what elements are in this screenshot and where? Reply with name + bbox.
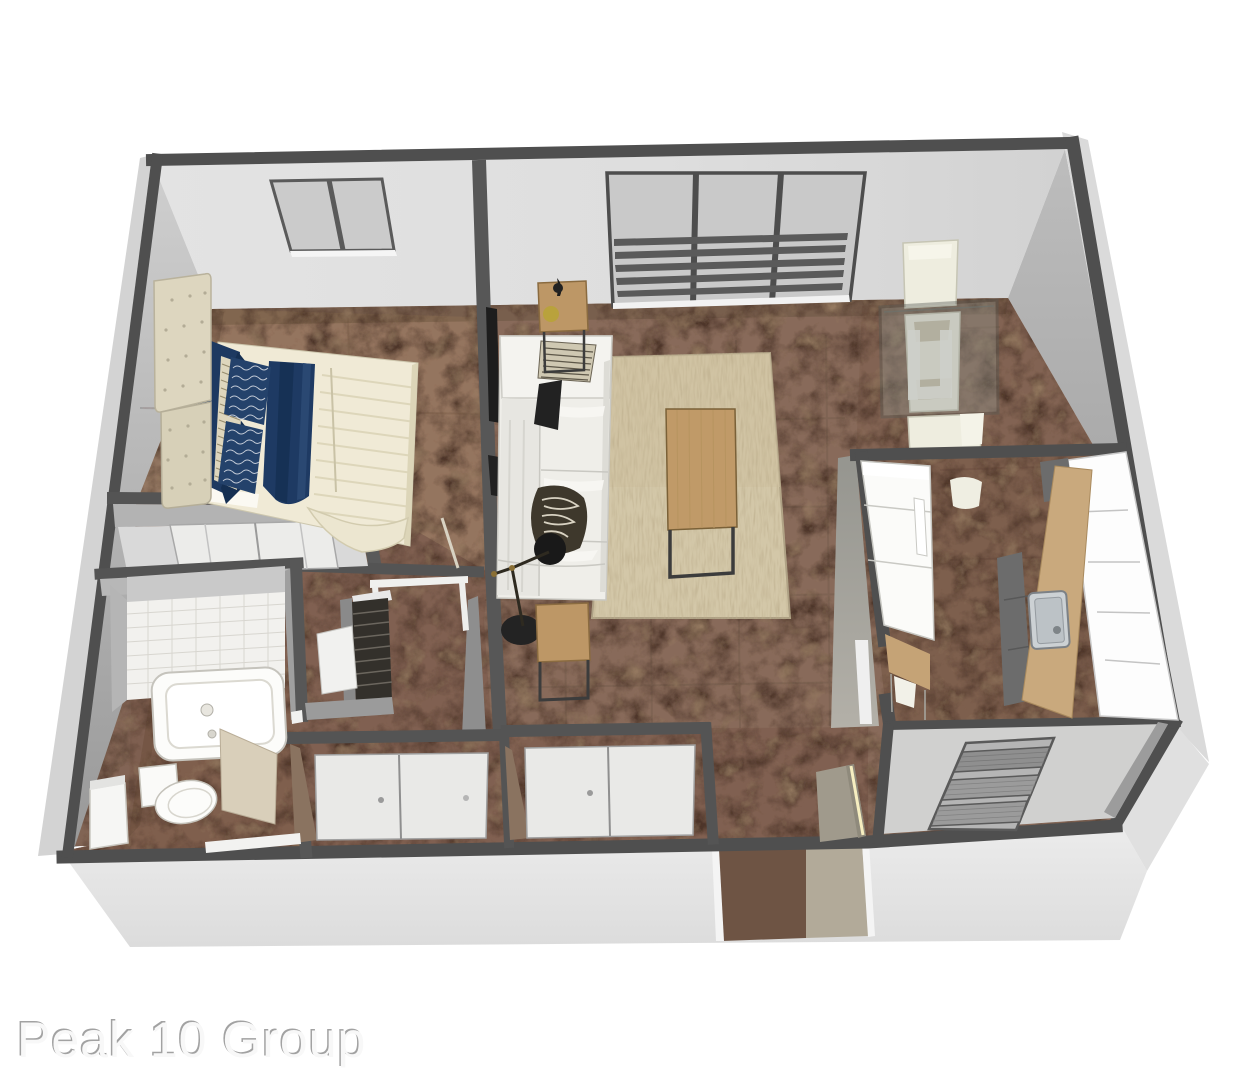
svg-text:Peak 10 Group: Peak 10 Group <box>17 1012 366 1068</box>
